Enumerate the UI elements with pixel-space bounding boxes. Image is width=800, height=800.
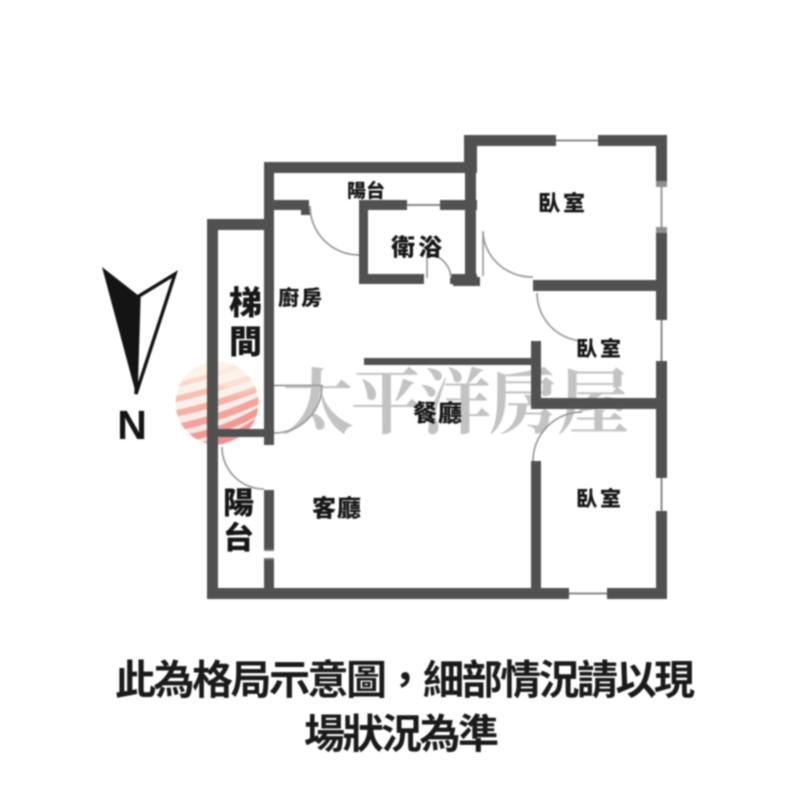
- svg-text:N: N: [117, 402, 147, 448]
